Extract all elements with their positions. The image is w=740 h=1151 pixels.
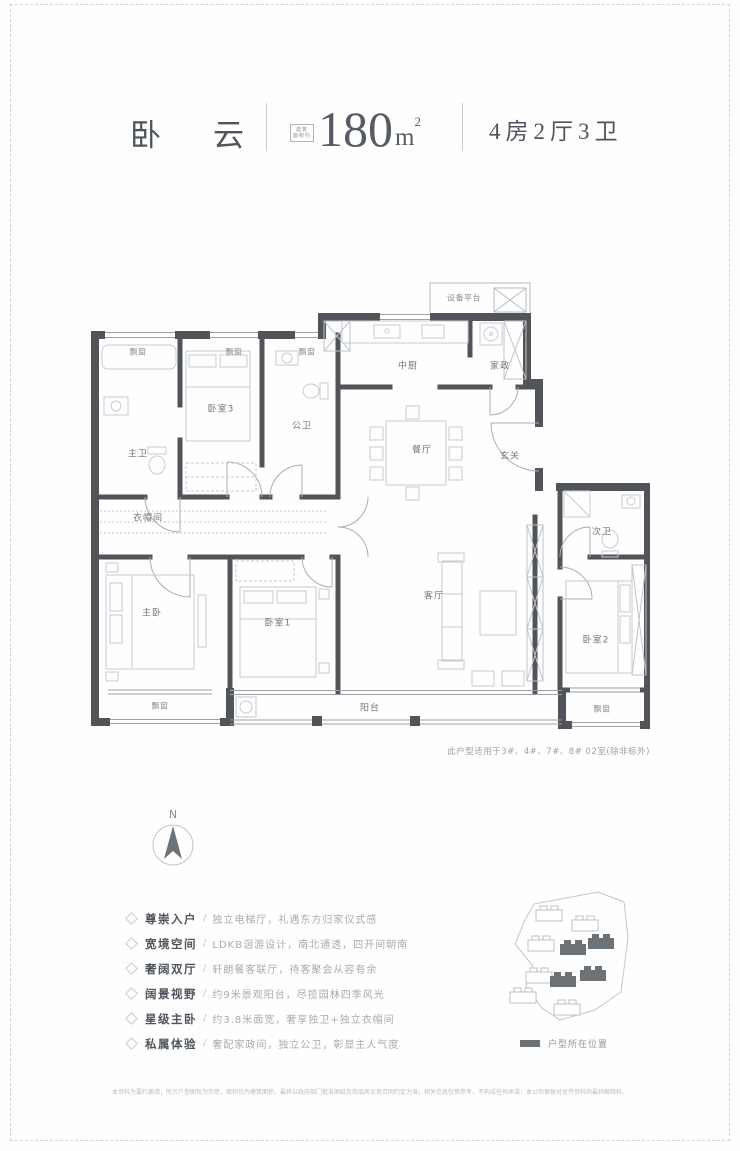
diamond-icon	[125, 1037, 138, 1050]
feature-separator: /	[203, 963, 206, 974]
legend-swatch	[520, 1040, 540, 1047]
area-label: 建筑 面积约	[290, 124, 314, 142]
other-buildings	[510, 906, 598, 1015]
feature-desc: 奢配家政间，独立公卫，彰显主人气度	[212, 1036, 399, 1051]
label-master-bedroom: 主卧	[142, 606, 162, 619]
label-living-room: 客厅	[424, 589, 444, 602]
label-housekeeping: 家政	[490, 359, 510, 372]
diamond-icon	[125, 987, 138, 1000]
disclaimer: 本资料为要约邀请，所示户型图仅为示意，面积均为建筑面积，最终以政府部门批准图纸及…	[60, 1087, 680, 1096]
feature-separator: /	[203, 1013, 206, 1024]
floorplan-flyer: 卧云 建筑 面积约 180 m 2 4房2厅3卫	[0, 0, 740, 1151]
label-bay-window-1: 飘窗	[130, 347, 147, 358]
label-bay-window-4: 飘窗	[152, 701, 169, 712]
feature-desc: 独立电梯厅，礼遇东方归家仪式感	[212, 911, 377, 926]
feature-separator: /	[203, 988, 206, 999]
applicability-note: 此户型适用于3#、4#、7#、8# 02室(除非标外)	[360, 745, 650, 757]
compass-north-label: N	[150, 808, 196, 821]
feature-row: 宽境空间 / LDKB洄游设计，南北通透，四开间朝南	[126, 931, 408, 956]
feature-separator: /	[203, 938, 206, 949]
feature-row: 私属体验 / 奢配家政间，独立公卫，彰显主人气度	[126, 1031, 408, 1056]
feature-list: 尊崇入户 / 独立电梯厅，礼遇东方归家仪式感 宽境空间 / LDKB洄游设计，南…	[126, 906, 408, 1056]
diamond-icon	[125, 912, 138, 925]
label-cloakroom: 衣帽间	[133, 511, 163, 524]
highlighted-buildings	[550, 934, 614, 987]
label-foyer: 玄关	[500, 449, 520, 462]
label-public-bath: 公卫	[292, 419, 312, 432]
area-unit: m	[395, 125, 414, 150]
label-bedroom3: 卧室3	[208, 402, 235, 415]
area-label-line2: 面积约	[293, 133, 311, 139]
site-map-legend: 户型所在位置	[520, 1037, 656, 1050]
label-kitchen: 中厨	[398, 359, 418, 372]
feature-title: 私属体验	[145, 1036, 197, 1052]
label-bedroom2: 卧室2	[583, 633, 610, 646]
feature-desc: 约9米景观阳台，尽揽园林四季风光	[212, 986, 384, 1001]
feature-separator: /	[203, 913, 206, 924]
area-value: 180	[318, 106, 393, 152]
diamond-icon	[125, 937, 138, 950]
site-map-drawing	[498, 882, 648, 1027]
label-bay-window-5: 飘窗	[594, 704, 611, 715]
doors	[145, 387, 592, 599]
shaft-hatching	[324, 321, 646, 681]
floorplan-drawing	[90, 265, 650, 740]
legend-label: 户型所在位置	[548, 1037, 608, 1050]
label-bay-window-2: 飘窗	[226, 347, 243, 358]
compass: N	[150, 808, 196, 872]
header-divider-2	[462, 103, 463, 151]
label-second-bath: 次卫	[592, 525, 612, 538]
diamond-icon	[125, 962, 138, 975]
feature-title: 奢阔双厅	[145, 961, 197, 977]
label-equipment-platform: 设备平台	[447, 293, 481, 304]
label-master-bath: 主卫	[128, 447, 148, 460]
feature-separator: /	[203, 1038, 206, 1049]
floorplan: 设备平台 飘窗 飘窗 飘窗 中厨 家政 餐厅 玄关 卧室3 公卫 主卫 衣帽间 …	[90, 265, 650, 740]
diamond-icon	[125, 1012, 138, 1025]
feature-row: 奢阔双厅 / 轩朗餐客联厅，待客聚会从容有余	[126, 956, 408, 981]
feature-desc: LDKB洄游设计，南北通透，四开间朝南	[212, 936, 408, 951]
area-group: 建筑 面积约 180 m 2	[290, 94, 421, 152]
feature-row: 尊崇入户 / 独立电梯厅，礼遇东方归家仪式感	[126, 906, 408, 931]
feature-title: 阔景视野	[145, 986, 197, 1002]
room-spec: 4房2厅3卫	[489, 112, 623, 146]
balcony-glazing	[230, 691, 562, 727]
site-location-map: 户型所在位置	[498, 882, 656, 1050]
header-divider-1	[266, 103, 267, 151]
feature-title: 尊崇入户	[145, 911, 197, 927]
feature-desc: 轩朗餐客联厅，待客聚会从容有余	[212, 961, 377, 976]
feature-row: 星级主卧 / 约3.8米面宽，奢享独卫+独立衣帽间	[126, 1006, 408, 1031]
feature-desc: 约3.8米面宽，奢享独卫+独立衣帽间	[212, 1011, 394, 1026]
feature-row: 阔景视野 / 约9米景观阳台，尽揽园林四季风光	[126, 981, 408, 1006]
label-bedroom1: 卧室1	[265, 616, 292, 629]
label-dining: 餐厅	[412, 443, 432, 456]
feature-title: 星级主卧	[145, 1011, 197, 1027]
interior-walls	[95, 317, 648, 692]
unit-title: 卧云	[130, 110, 296, 155]
label-balcony: 阳台	[360, 701, 380, 714]
feature-title: 宽境空间	[145, 936, 197, 952]
label-bay-window-3: 飘窗	[299, 347, 316, 358]
area-unit-superscript: 2	[414, 114, 421, 130]
north-arrow-icon	[150, 822, 196, 868]
